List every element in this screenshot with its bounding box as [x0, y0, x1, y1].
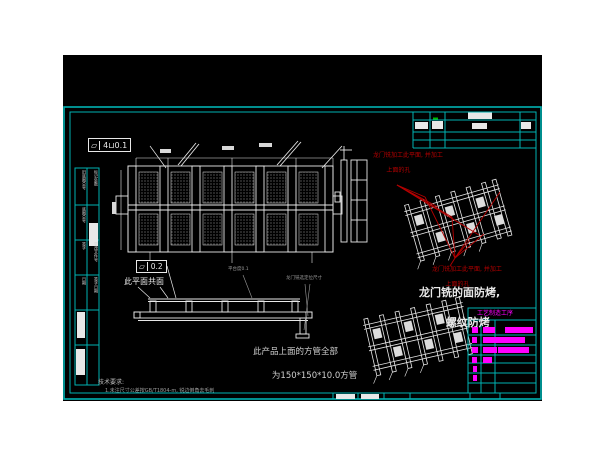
flatness-tolerance: 0.2 — [148, 262, 166, 271]
parts-table-entry-bar — [473, 375, 477, 381]
tech-requirements-line1: 1.未注尺寸公差按GB/T1804-m, 锐边倒角去毛刺 — [105, 388, 214, 394]
parts-table-entry-bar — [472, 357, 477, 363]
parts-table-header: 工艺制造工序 — [477, 310, 513, 318]
revision-strip-block — [77, 312, 85, 338]
platform-flatness-note: 平台度0.1 — [228, 267, 249, 273]
parts-table-entry-bar — [498, 347, 529, 353]
plan-view — [112, 141, 342, 263]
red-machining-note-top: 龙门铣加工此平面, 并加工 上面的孔 — [373, 152, 443, 175]
red-note-top-line2: 上面的孔 — [386, 167, 410, 174]
tube-note-line1: 此产品上面的方管全部 — [253, 347, 338, 357]
side-view — [335, 146, 367, 242]
gantry-dim-note: 龙门铣选定位尺寸 — [286, 276, 322, 282]
parts-table-entry-bar — [483, 357, 492, 363]
revision-strip-label: 签字 — [76, 242, 86, 273]
parts-table-entry-bar — [505, 327, 533, 333]
revision-strip-label: 标记处数 — [89, 170, 98, 203]
revision-strip-label: 日期 — [76, 277, 86, 308]
green-mark — [433, 118, 438, 120]
header-table — [413, 112, 536, 148]
parts-table-entry-bar — [483, 347, 497, 353]
flatness-symbol: ⏥ — [89, 141, 100, 150]
bottom-title-strip — [333, 393, 500, 399]
red-note-bottom-line1: 龙门铣加工此平面, 并加工 — [432, 266, 502, 273]
parts-table-entry-bar — [483, 337, 525, 343]
revision-strip-block — [76, 349, 85, 375]
face-protection-note: 龙门铣的面防烤, 螺纹防烤 — [419, 286, 500, 331]
revision-strip-label: 更改文件号 — [89, 242, 98, 273]
flatness-tolerance: 4⊔0.1 — [100, 141, 130, 150]
parts-table-entry-bar — [472, 327, 478, 333]
tube-note-line2: 为150*150*10.0方管 — [272, 371, 357, 381]
front-view — [134, 299, 312, 338]
red-note-top-line1: 龙门铣加工此平面, 并加工 — [373, 152, 443, 159]
face-note-line1: 龙门铣的面防烤, — [419, 286, 500, 299]
parts-table-entry-bar — [483, 327, 495, 333]
revision-strip-label: 旧底图总号 — [76, 170, 86, 203]
tech-requirements-title: 技术要求: — [98, 379, 124, 387]
parts-table-entry-bar — [472, 347, 478, 353]
screenshot-page: ⏥ 4⊔0.1 ⏥ 0.2 此平面共面 平台度0.1 龙门铣选定位尺寸 龙门铣加… — [0, 0, 600, 450]
parts-table-entry-bar — [473, 366, 477, 372]
header-table-text-blocks — [415, 113, 531, 130]
red-leader-lines — [397, 185, 500, 266]
feature-control-frame-flatness-mid: ⏥ 0.2 — [136, 260, 167, 273]
revision-strip-label: 签字日期 — [89, 277, 98, 308]
parts-table-entry-bar — [472, 337, 477, 343]
flatness-symbol: ⏥ — [137, 262, 148, 271]
revision-strip-label: 底图总号 — [76, 207, 86, 238]
square-tube-note: 此产品上面的方管全部 为150*150*10.0方管 — [253, 347, 357, 383]
feature-control-frame-flatness-top: ⏥ 4⊔0.1 — [88, 138, 131, 152]
coplanar-note: 此平面共面 — [124, 277, 164, 287]
